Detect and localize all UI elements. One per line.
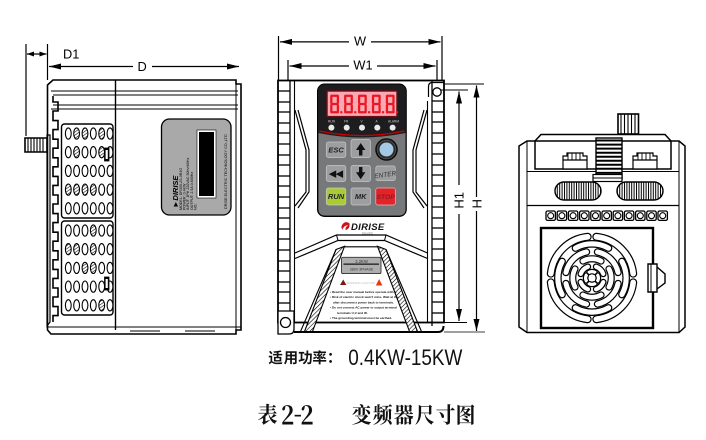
svg-text:• Risk of electric shock wait: • Risk of electric shock wait 5 mins. Wa… (330, 295, 399, 299)
svg-text:W1: W1 (353, 57, 372, 72)
svg-text:◀◀: ◀◀ (328, 168, 344, 178)
svg-text:STOP: STOP (376, 194, 395, 201)
svg-text:D: D (138, 59, 147, 74)
svg-text:NO.:: NO.: (193, 203, 197, 210)
svg-text:H: H (470, 199, 485, 208)
svg-text:RUN: RUN (328, 192, 345, 201)
svg-text:MK: MK (355, 192, 367, 201)
svg-text:• Do not connect AC power to o: • Do not connect AC power to output term… (330, 306, 397, 310)
svg-text:0.4KW-15KW: 0.4KW-15KW (348, 345, 463, 370)
svg-text:WARNING CAUTION: WARNING CAUTION (347, 281, 376, 285)
svg-text:2.2KW: 2.2KW (355, 259, 368, 264)
svg-text:H1: H1 (452, 192, 467, 209)
svg-text:ALARM: ALARM (388, 120, 399, 124)
svg-text:DRISE ELECTRIC TECHNOLOGY CO.,: DRISE ELECTRIC TECHNOLOGY CO.,LTD (224, 134, 228, 209)
svg-text:terminals U,V and W.: terminals U,V and W. (337, 311, 368, 315)
svg-text:W: W (354, 33, 367, 48)
svg-text:ESC: ESC (328, 145, 344, 154)
svg-text:FR: FR (344, 120, 349, 124)
svg-text:D1: D1 (63, 47, 79, 62)
svg-text:RUN: RUN (328, 120, 336, 124)
svg-text:• The grounding terminal must: • The grounding terminal must be earthed… (330, 316, 392, 320)
svg-text:• Read the user manual before: • Read the user manual before operate wi… (330, 290, 397, 294)
svg-text:after disconnect power back to: after disconnect power back to terminals… (333, 300, 394, 304)
svg-text:380V 3PHASE: 380V 3PHASE (350, 267, 374, 271)
